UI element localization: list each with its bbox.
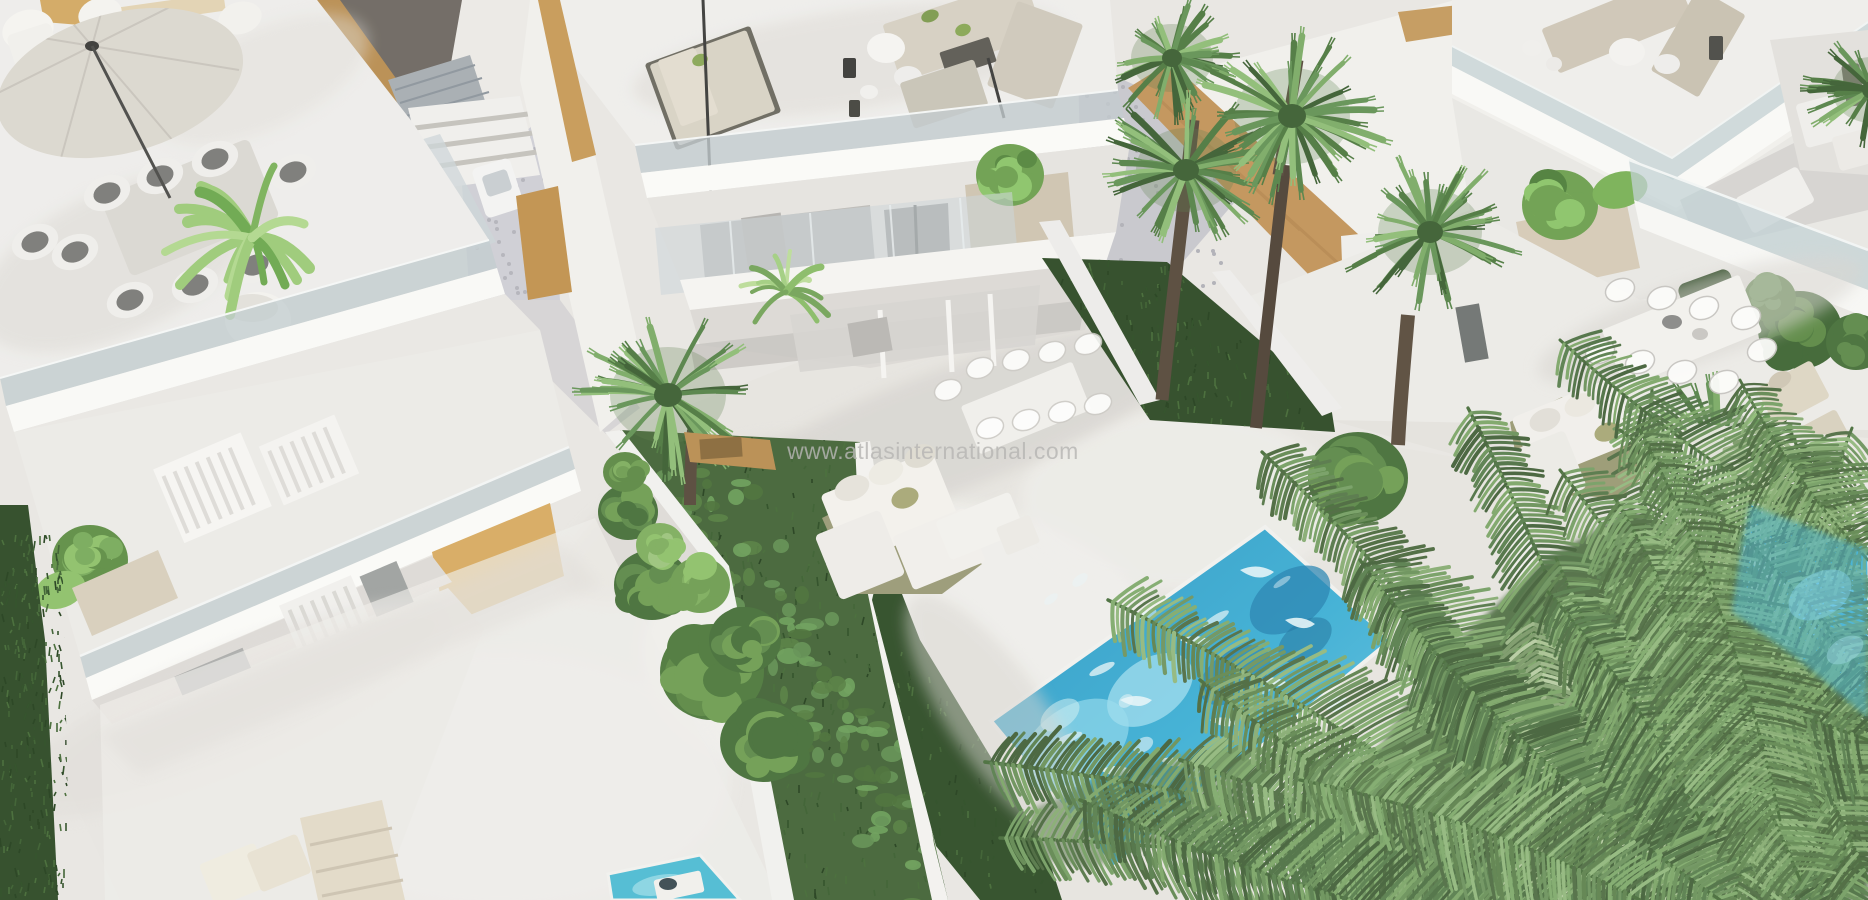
- svg-text:www.atlasinternational.com: www.atlasinternational.com: [786, 438, 1079, 464]
